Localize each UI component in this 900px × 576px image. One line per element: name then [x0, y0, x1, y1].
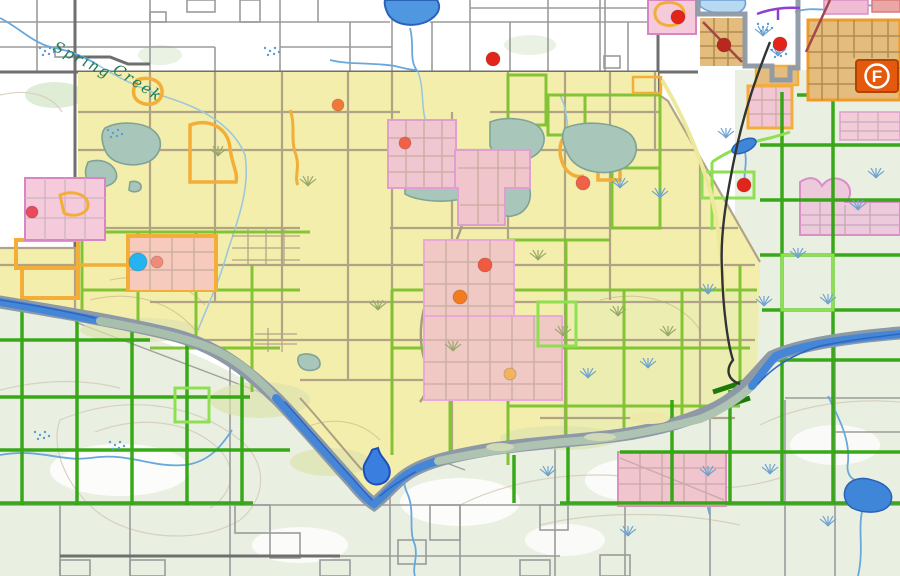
red-poi-marker[interactable]: [671, 10, 685, 24]
map-canvas[interactable]: Spring Creek F: [0, 0, 900, 576]
zone-pink: [388, 120, 456, 188]
zone-pink: [840, 112, 900, 140]
red-poi-marker[interactable]: [486, 52, 500, 66]
red-orange-poi-marker[interactable]: [576, 176, 590, 190]
blue-poi-marker[interactable]: [129, 253, 147, 271]
red-poi-marker[interactable]: [737, 178, 751, 192]
dark-red-poi-marker[interactable]: [717, 38, 731, 52]
zone-pink: [748, 86, 792, 128]
orange-poi-marker[interactable]: [332, 99, 344, 111]
salmon-poi-marker[interactable]: [151, 256, 163, 268]
pink-red-poi-marker[interactable]: [26, 206, 38, 218]
light-orange-poi-marker[interactable]: [504, 368, 516, 380]
red-orange-poi-marker[interactable]: [478, 258, 492, 272]
zone-red-pink: [872, 0, 900, 12]
orange-poi-marker[interactable]: [453, 290, 467, 304]
poi-badge-f[interactable]: F: [856, 60, 898, 92]
poi-badge-letter: F: [872, 67, 882, 86]
red-orange-poi-marker[interactable]: [399, 137, 411, 149]
red-poi-marker[interactable]: [773, 37, 787, 51]
zone-pink: [824, 0, 868, 14]
